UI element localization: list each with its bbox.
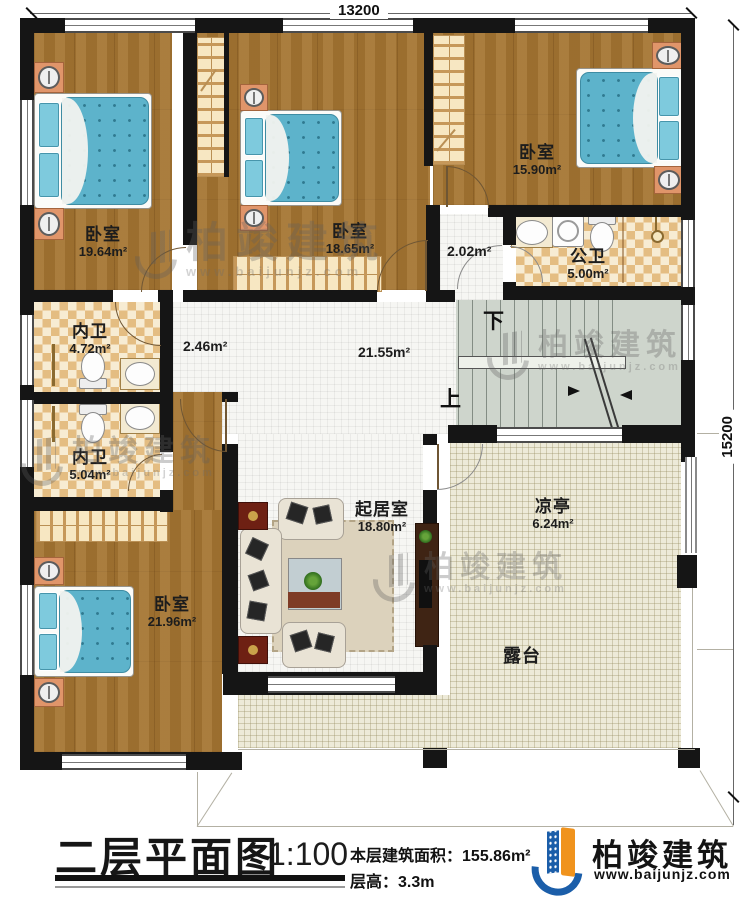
room-area: 15.90m² (513, 163, 561, 178)
eave-connector-b (697, 649, 734, 650)
wall-tr-south (488, 205, 681, 217)
bed-sheet (60, 591, 82, 672)
window-right-stairs (681, 305, 695, 360)
wall-bath-east-upper (160, 290, 173, 398)
room-area: 18.65m² (326, 242, 374, 257)
bed-cushion (244, 159, 264, 198)
room-name: 露台 (503, 646, 541, 667)
closet-bedroom-bottom-left (36, 508, 168, 542)
closet-bedroom-top-right (433, 35, 465, 165)
label-bedroom-tm: 卧室 18.65m² (326, 222, 374, 256)
nightstand (34, 557, 64, 585)
plant (419, 530, 432, 543)
bed-cushion (38, 633, 58, 671)
label-corridor-top-area: 2.02m² (447, 243, 491, 259)
wall-niche-east (224, 33, 229, 177)
window-left-bath-upper (20, 315, 34, 385)
bath-partition-line (622, 217, 624, 283)
side-table (238, 502, 268, 530)
bed-cushion (38, 102, 60, 148)
label-pavilion: 凉亭 6.24m² (532, 497, 573, 531)
scale-label: 1:100 (268, 836, 348, 873)
floor-area-text: 本层建筑面积：155.86m² (350, 842, 531, 866)
wall-pavilion-west-b (423, 490, 437, 523)
wall-tm-south-a (183, 290, 377, 302)
eave-line-left-vertical (197, 772, 198, 826)
bed-sheet (62, 98, 88, 204)
brand-website: www.baijunjz.com (594, 866, 731, 882)
room-area: 18.80m² (355, 520, 409, 535)
window-top-1 (65, 18, 195, 33)
wall-bath-lower-south (34, 497, 160, 511)
stairs-up-label: 上 (440, 383, 461, 413)
brand-logo-icon (534, 828, 584, 888)
floor-pavilion-terrace (450, 443, 681, 748)
room-name: 起居室 (355, 500, 409, 520)
wall-public-bath-west-a (503, 214, 516, 245)
bed-sheet (633, 73, 657, 163)
wall-corridor-top-west (426, 205, 440, 302)
wall-tl-east (183, 33, 197, 245)
wall-stairs-south-a (448, 425, 497, 443)
label-bath-upper: 内卫 4.72m² (69, 322, 110, 356)
floor-height-value: 3.3m (398, 874, 434, 891)
towel-bar (52, 406, 55, 442)
sink (516, 220, 548, 245)
railing-pavilion-east (685, 457, 697, 553)
bed-cushion (658, 120, 680, 161)
floor-area-value: 155.86m² (462, 848, 531, 865)
eave-line-right-vertical (692, 588, 693, 748)
label-bath-lower: 内卫 5.04m² (69, 448, 110, 482)
door-leaf (225, 399, 227, 451)
bed-mattress (580, 72, 658, 164)
nightstand (34, 62, 64, 93)
window-top-2 (283, 18, 413, 33)
label-living: 起居室 18.80m² (355, 500, 409, 534)
wall-stairs-south-b (622, 425, 695, 443)
closet-niche (197, 37, 226, 177)
room-name: 内卫 (69, 448, 110, 468)
label-bedroom-tr: 卧室 15.90m² (513, 143, 561, 177)
window-left-bedroom-tl (20, 100, 34, 205)
nightstand (34, 208, 64, 240)
door-leaf (437, 444, 439, 489)
tv (419, 560, 432, 608)
window-right-public-bath (681, 220, 695, 287)
stairs-arrow-left (620, 390, 632, 400)
wall-bath-upper-north-a (34, 290, 113, 302)
room-area: 4.72m² (69, 342, 110, 357)
wall-pavilion-west-a (423, 434, 437, 445)
label-corridor-left-area: 2.46m² (183, 338, 227, 354)
stairs-lower-flight (458, 369, 562, 432)
room-name: 公卫 (567, 247, 608, 267)
nightstand (240, 84, 268, 111)
stairs-arrow-right (568, 386, 580, 396)
toilet-bowl (81, 412, 105, 443)
light-pull (655, 216, 657, 231)
nightstand (654, 166, 684, 194)
door-leaf (446, 166, 448, 207)
bed-top-middle (240, 110, 342, 206)
sofa-pillow (247, 601, 268, 622)
window-left-bath-lower (20, 400, 34, 467)
door-leaf (425, 240, 427, 291)
sink (125, 362, 155, 386)
room-area: 21.96m² (148, 615, 196, 630)
wall-bath-east-lower (160, 398, 173, 452)
side-table (238, 636, 268, 664)
window-living-south (268, 676, 395, 693)
wall-tm-east (424, 33, 433, 166)
bed-cushion (658, 76, 680, 117)
towel-bar (52, 344, 55, 386)
bed-top-right (576, 68, 684, 168)
room-area: 19.64m² (79, 245, 127, 260)
light-pull-knob (651, 230, 664, 243)
title-underline-thin (55, 886, 345, 888)
bed-cushion (38, 152, 60, 198)
room-area: 6.24m² (532, 517, 573, 532)
window-left-bedroom-bl (20, 585, 34, 675)
room-area: 5.04m² (69, 468, 110, 483)
nightstand (34, 678, 64, 707)
floor-terrace-strip (238, 695, 450, 748)
terrace-bottom-line (238, 749, 695, 750)
floor-plan-page: 13200 15200 卧室 19.64m² 卧室 18.65m² 卧室 15.… (0, 0, 750, 897)
pillar (678, 748, 700, 768)
title-underline-thick (55, 875, 345, 881)
bed-top-left (34, 93, 152, 209)
dimension-width: 13200 (330, 2, 388, 19)
washing-machine (552, 215, 584, 247)
room-name: 凉亭 (532, 497, 573, 517)
bed-sheet (266, 115, 289, 201)
floor-height-text: 层高：3.3m (350, 868, 434, 892)
logo-swoosh (521, 834, 592, 897)
label-hall-area: 21.55m² (358, 344, 410, 360)
label-bedroom-tl: 卧室 19.64m² (79, 225, 127, 259)
room-name: 内卫 (69, 322, 110, 342)
floor-area-label: 本层建筑面积： (350, 848, 462, 865)
nightstand (652, 42, 684, 69)
dimension-height: 15200 (719, 410, 736, 464)
label-public-bath: 公卫 5.00m² (567, 247, 608, 281)
closet-bedroom-top-middle (233, 256, 382, 292)
room-name: 卧室 (513, 143, 561, 163)
wall-public-bath-south (503, 286, 695, 300)
bed-cushion (38, 592, 58, 630)
sink (125, 406, 155, 430)
plant (304, 572, 322, 590)
floor-height-label: 层高： (350, 874, 398, 891)
bed-mattress (265, 114, 339, 202)
eave-diagonal-left (197, 773, 233, 827)
eave-diagonal-right (700, 770, 734, 826)
pillar (677, 555, 697, 588)
label-bedroom-bl: 卧室 21.96m² (148, 595, 196, 629)
room-area: 5.00m² (567, 267, 608, 282)
bed-mattress (59, 590, 131, 673)
bed-mattress (61, 97, 149, 205)
room-name: 卧室 (79, 225, 127, 245)
stairs-down-label: 下 (483, 305, 504, 335)
window-top-3 (515, 18, 648, 33)
window-stairs-south (497, 427, 622, 443)
room-name: 卧室 (148, 595, 196, 615)
bed-bottom-left (34, 586, 134, 677)
room-name: 卧室 (326, 222, 374, 242)
wall-bedroom-bl-east (222, 444, 238, 674)
wall-between-baths (34, 392, 160, 404)
nightstand (240, 205, 268, 231)
pillar (423, 748, 447, 768)
window-bedroom-bl-south (62, 754, 186, 770)
sofa-pillow (312, 504, 332, 524)
bed-cushion (244, 117, 264, 156)
wall-bath-east-lower-b (160, 490, 173, 512)
coffee-table-shelf (288, 592, 340, 608)
wall-pavilion-west-c (423, 645, 437, 672)
label-terrace: 露台 (503, 646, 541, 667)
